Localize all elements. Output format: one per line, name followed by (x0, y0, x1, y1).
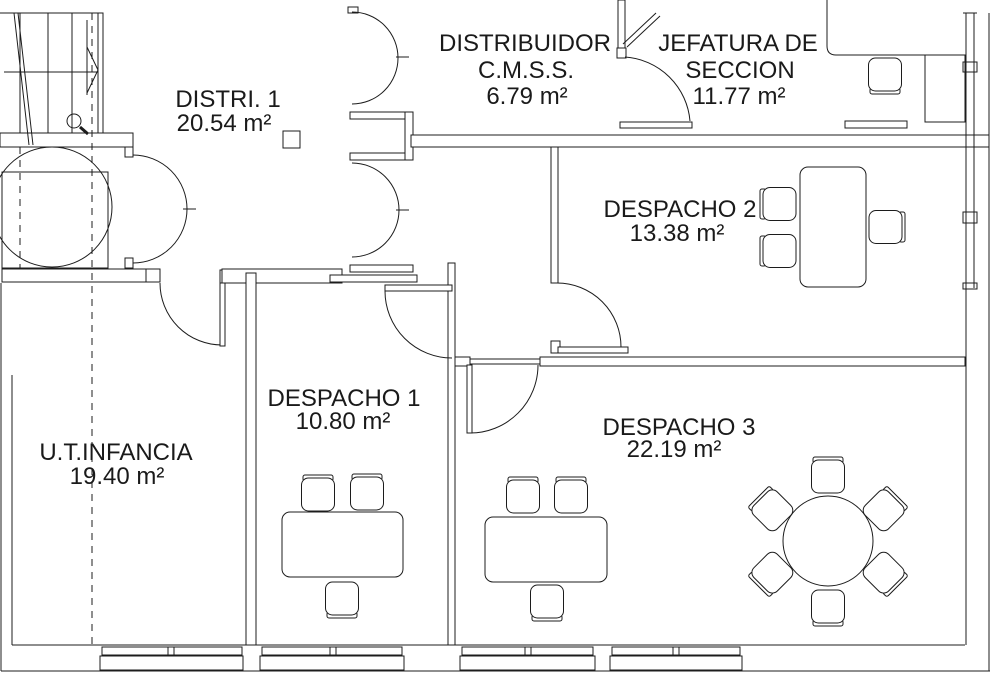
despacho1-chair-2 (351, 474, 384, 510)
room-area-despacho-1: 10.80 m² (296, 408, 391, 435)
floor-plan-drawing: DISTRI. 1 20.54 m² DISTRIBUIDOR C.M.S.S.… (0, 0, 1006, 695)
window-d1-sill (260, 656, 404, 670)
uti-east-wall (246, 273, 256, 645)
window-d3a-mullion (525, 647, 531, 655)
despacho2-door-leaf (558, 347, 628, 353)
despacho3-door-leaf (467, 365, 472, 433)
distribuidor-door2-arc-top (352, 163, 399, 210)
uti-door-jamb-left (146, 269, 160, 282)
despacho2-west-wall (551, 147, 558, 283)
jefatura-desk-return (925, 55, 965, 122)
jefatura-door-jamb (617, 48, 626, 58)
stair-break-line-1 (14, 13, 29, 145)
room-area-ut-infancia: 19.40 m² (70, 463, 165, 490)
despacho3-chair-1-seat (507, 480, 540, 513)
floor-plan-canvas: DISTRI. 1 20.54 m² DISTRIBUIDOR C.M.S.S.… (0, 0, 1006, 695)
despacho2-chair-3 (869, 211, 905, 244)
room-label-ut-infancia: U.T.INFANCIA (39, 439, 192, 466)
meeting-table (783, 496, 873, 586)
jefatura-chair-seat (869, 58, 902, 91)
despacho1-north-wall-jog (330, 275, 417, 282)
room-label-distribuidor: DISTRIBUIDOR (439, 30, 611, 57)
despacho3-chair-2-seat (555, 480, 588, 513)
despacho23-divider (540, 357, 965, 366)
uti-door-leaf (220, 283, 225, 346)
room-area-distribuidor: 6.79 m² (486, 83, 567, 110)
despacho1-chair-3-seat (326, 582, 359, 615)
lobby-door-arc-bottom (133, 209, 187, 263)
despacho1-desk (282, 512, 403, 577)
distribuidor-south-stub (350, 265, 413, 272)
stair-side-wall (98, 13, 103, 133)
despacho2-chair-1-seat (763, 188, 796, 221)
despacho1-east-wall (448, 263, 455, 645)
despacho1-door-arc (385, 291, 452, 358)
east-window-mullion-2 (963, 212, 977, 223)
despacho3-door-arc (470, 365, 538, 433)
room-label-despacho-2: DESPACHO 2 (604, 196, 757, 223)
despacho1-chair-2-seat (351, 477, 384, 510)
key-symbol-ring (67, 114, 81, 128)
window-d3b-sill (610, 656, 742, 670)
uti-door-arc (160, 283, 222, 345)
jefatura-door-leaf-b (627, 16, 660, 47)
distribuidor-mid-post-top (350, 112, 413, 119)
room-label-jefatura: JEFATURA DE (658, 30, 818, 57)
jefatura-chair (869, 58, 902, 94)
room-area-despacho-3: 22.19 m² (627, 436, 722, 463)
room-area-despacho-2: 13.38 m² (630, 220, 725, 247)
despacho3-desk (485, 517, 607, 582)
despacho1-chair-1 (302, 475, 335, 511)
despacho2-desk (800, 167, 866, 287)
lobby-door-jamb-bottom (125, 258, 133, 268)
stair-landing-wall (0, 133, 133, 147)
jefatura-desk-edge (827, 0, 965, 55)
jefatura-door-leaf-a (623, 13, 656, 44)
room-area-jefatura: 11.77 m² (693, 83, 786, 110)
despacho3-chair-1 (507, 477, 540, 513)
despacho3-chair-3-seat (531, 585, 564, 618)
despacho1-door-leaf (385, 285, 452, 291)
window-uti-sill (100, 656, 243, 670)
despacho1-chair-1-seat (302, 478, 335, 511)
room-label-distri-1: DISTRI. 1 (175, 86, 280, 113)
distribuidor-door1-arc-bottom (352, 58, 398, 104)
table-chair-s-seat (812, 590, 845, 623)
elevator-circle (0, 147, 112, 267)
table-chair-s (812, 590, 845, 626)
despacho1-chair-3 (326, 582, 359, 618)
distribuidor-door1-arc-top (352, 12, 398, 58)
room-area-distri-1: 20.54 m² (177, 110, 272, 137)
window-d1-mullion (330, 647, 336, 655)
jefatura-door-arc (625, 57, 690, 121)
room-sublabel-distribuidor: C.M.S.S. (478, 57, 574, 84)
window-uti-mullion (168, 647, 174, 655)
table-chair-n (812, 457, 845, 493)
despacho2-chair-1 (760, 188, 796, 221)
jefatura-door-head (620, 122, 692, 128)
despacho2-chair-2 (760, 235, 796, 268)
room-sublabel-jefatura: SECCION (685, 57, 794, 84)
lobby-door-arc-top (133, 155, 187, 209)
lobby-door-jamb-top (125, 147, 133, 157)
column (283, 131, 300, 148)
jefatura-counter (845, 121, 907, 128)
corridor-south-wall (411, 135, 989, 147)
despacho2-door-arc (557, 283, 621, 347)
uti-north-wall-west (2, 269, 148, 282)
despacho2-chair-3-seat (869, 211, 902, 244)
room-labels: DISTRI. 1 20.54 m² DISTRIBUIDOR C.M.S.S.… (39, 30, 817, 490)
east-window-mullion-3 (963, 283, 977, 289)
despacho1-north-wall (222, 269, 342, 283)
despacho2-chair-2-seat (763, 235, 796, 268)
despacho3-chair-2 (555, 477, 588, 513)
despacho3-chair-3 (531, 585, 564, 621)
window-d3a-sill (460, 656, 595, 670)
jefatura-west-wall (618, 0, 625, 48)
distribuidor-door2-arc-bottom (352, 210, 399, 257)
table-chair-n-seat (812, 460, 845, 493)
window-d3b-mullion (673, 647, 679, 655)
distribuidor-mid-post-bottom (350, 153, 413, 160)
